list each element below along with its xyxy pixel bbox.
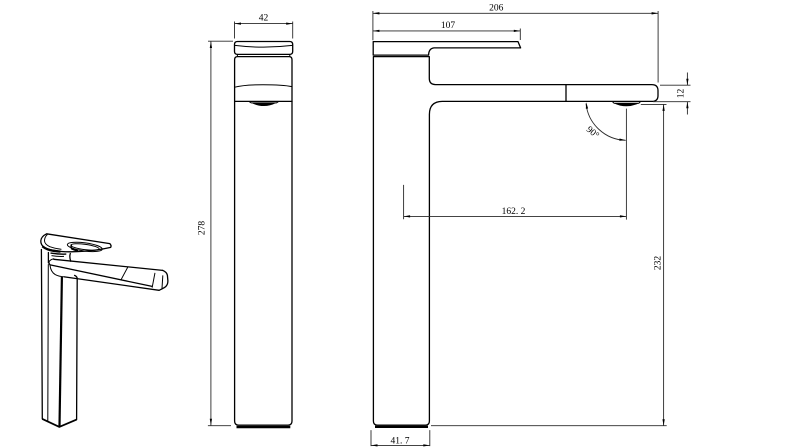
svg-text:12: 12: [677, 89, 687, 99]
svg-text:107: 107: [441, 21, 456, 31]
svg-text:41. 7: 41. 7: [391, 436, 410, 446]
svg-text:206: 206: [489, 3, 504, 13]
svg-text:232: 232: [654, 256, 664, 271]
svg-text:162. 2: 162. 2: [502, 207, 526, 217]
svg-text:278: 278: [198, 221, 208, 236]
svg-text:42: 42: [259, 14, 269, 24]
